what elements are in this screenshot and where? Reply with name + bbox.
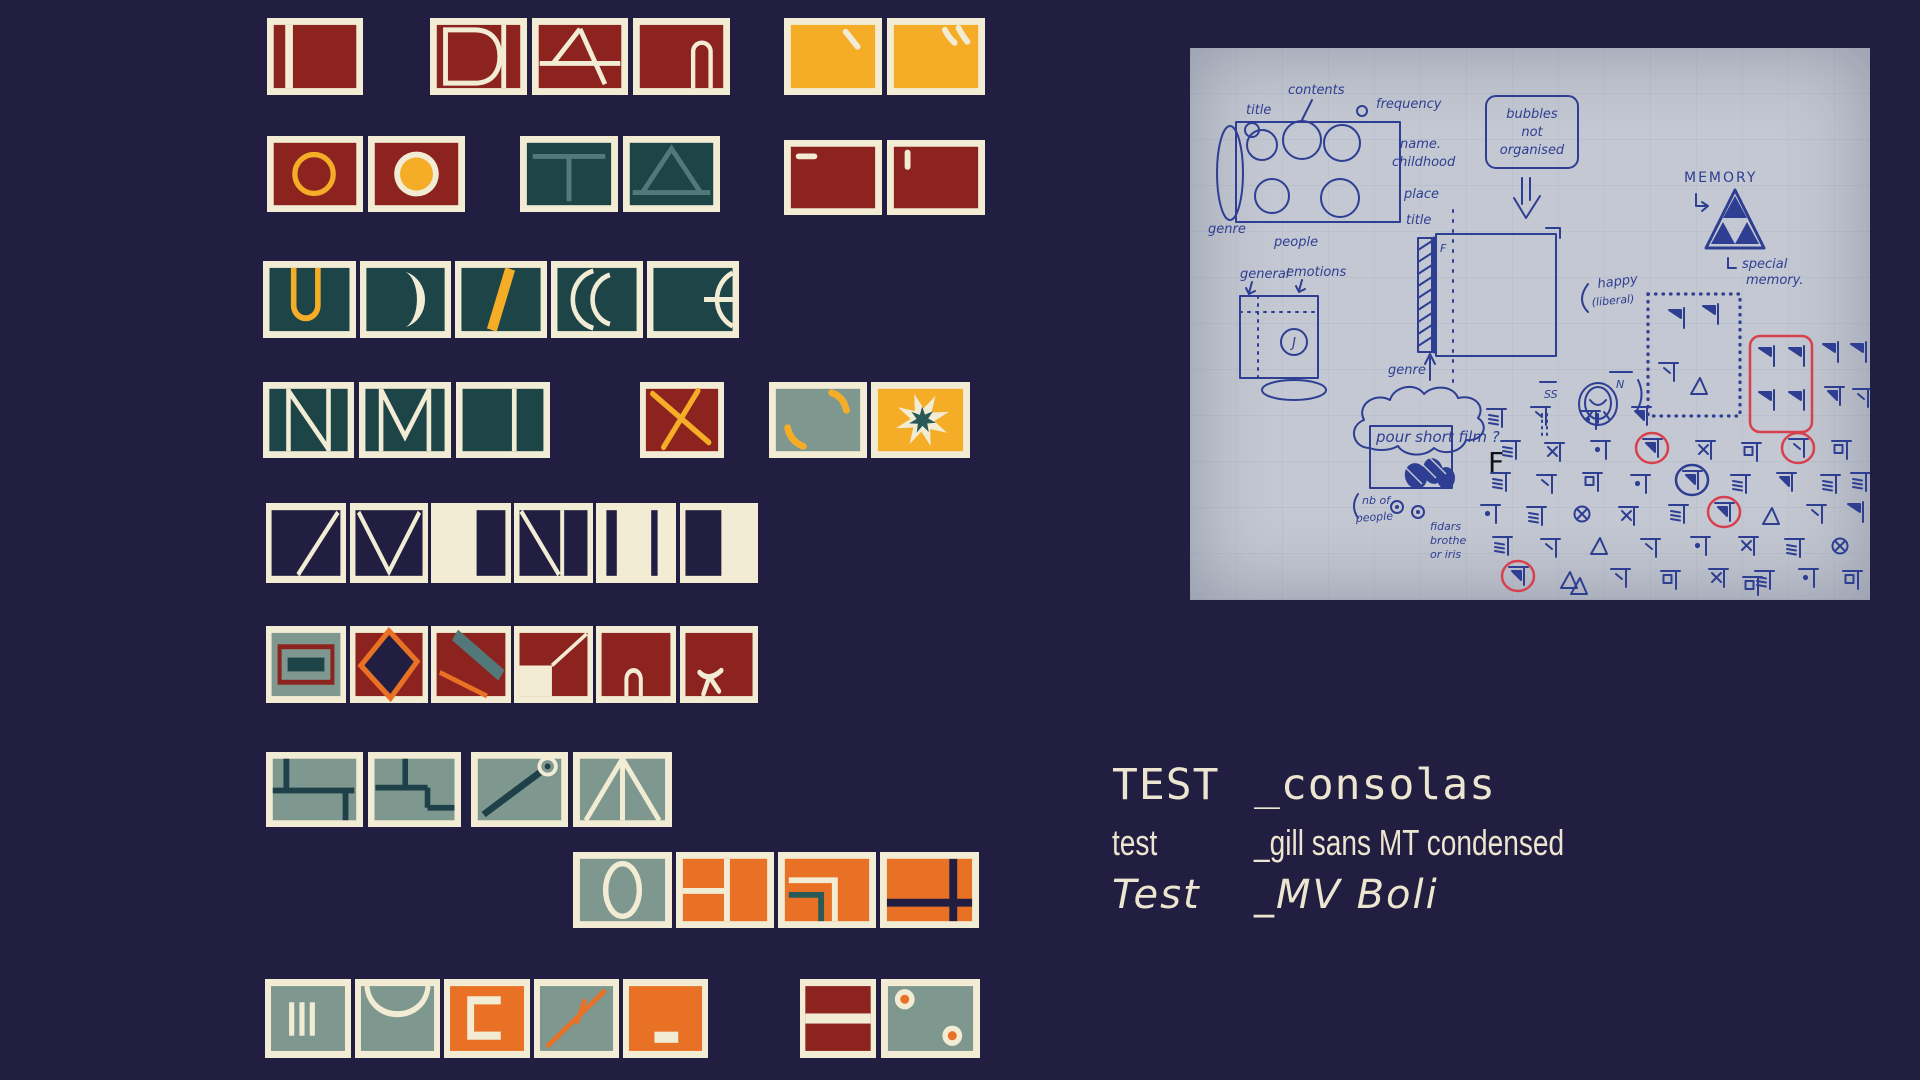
tile-ring-amber bbox=[267, 136, 363, 212]
font-test-row: test _gill sans MT condensed bbox=[1112, 822, 1652, 864]
tile-cross-navy bbox=[880, 852, 979, 928]
cuneiform-glyph bbox=[1708, 497, 1740, 527]
cuneiform-glyph bbox=[1619, 507, 1638, 525]
cuneiform-glyph bbox=[1789, 390, 1804, 410]
tile-diag bbox=[266, 503, 346, 583]
tile-crescent-1 bbox=[360, 261, 451, 338]
tile-flag bbox=[514, 626, 593, 703]
tile-small-arch bbox=[596, 626, 676, 703]
cuneiform-glyph bbox=[1853, 389, 1870, 407]
label-contents: contents bbox=[1288, 83, 1345, 98]
cuneiform-glyph bbox=[1661, 571, 1680, 589]
cuneiform-glyph bbox=[1759, 346, 1774, 366]
tile-diamond bbox=[350, 626, 428, 703]
cuneiform-glyph bbox=[1851, 473, 1870, 491]
label-name: name. bbox=[1400, 137, 1441, 152]
label-emotions: emotions bbox=[1286, 265, 1347, 280]
tile-triangle bbox=[623, 136, 720, 212]
tile-starburst bbox=[871, 382, 970, 458]
cuneiform-glyph bbox=[1575, 507, 1590, 522]
tile-cream-left-navy bbox=[680, 503, 758, 583]
cuneiform-glyph bbox=[1541, 539, 1560, 557]
cuneiform-glyph bbox=[1493, 537, 1512, 555]
cuneiform-glyph bbox=[1759, 390, 1774, 410]
red-selection-box bbox=[1750, 336, 1812, 432]
cuneiform-glyph bbox=[1527, 507, 1546, 525]
bubbles-line-3: organised bbox=[1500, 143, 1565, 158]
tile-pin-diag bbox=[471, 752, 568, 827]
label-general: general bbox=[1240, 267, 1290, 282]
tile-tick-2 bbox=[887, 18, 985, 95]
cuneiform-glyph bbox=[1789, 346, 1804, 366]
label-liberal: (liberal) bbox=[1591, 292, 1635, 309]
tile-arch-right bbox=[633, 18, 730, 95]
font-sample-consolas: TEST bbox=[1112, 760, 1254, 810]
cuneiform-glyph bbox=[1696, 441, 1715, 459]
cuneiform-glyph bbox=[1691, 537, 1710, 555]
tile-diag-split bbox=[514, 503, 593, 583]
tile-letter-D bbox=[430, 18, 527, 95]
sketch-drawing: title contents frequency name. childhood… bbox=[1190, 48, 1870, 600]
label-memory: MEMORY bbox=[1684, 170, 1757, 186]
tile-slash-amber bbox=[455, 261, 547, 338]
tile-grid-h bbox=[676, 852, 774, 928]
cuneiform-glyph bbox=[1545, 443, 1564, 461]
hook-arrow-icon bbox=[1696, 194, 1708, 211]
cuneiform-glyph bbox=[1691, 378, 1707, 394]
label-place: place bbox=[1403, 187, 1439, 202]
cuneiform-glyph bbox=[1823, 342, 1838, 362]
tile-slash-cross bbox=[534, 979, 619, 1058]
font-test-list: TEST _consolas test _gill sans MT conden… bbox=[1112, 760, 1652, 918]
label-frequency: frequency bbox=[1376, 97, 1442, 112]
cuneiform-glyph bbox=[1611, 569, 1630, 587]
tile-oval bbox=[573, 852, 672, 928]
cuneiform-glyph bbox=[1843, 571, 1862, 589]
tile-u-amber bbox=[263, 261, 356, 338]
moodboard-canvas: title contents frequency name. childhood… bbox=[0, 0, 1920, 1080]
label-people: people bbox=[1273, 235, 1318, 250]
cuneiform-glyph bbox=[1669, 505, 1688, 523]
label-fidars: fidars bbox=[1430, 520, 1461, 533]
cuneiform-glyph bbox=[1785, 539, 1804, 557]
cuneiform-glyph bbox=[1731, 475, 1750, 493]
sketch-photo: title contents frequency name. childhood… bbox=[1190, 48, 1870, 600]
label-or-iris: or iris bbox=[1430, 548, 1461, 561]
film-frame-note: nb of people fidars brothe or iris bbox=[1354, 426, 1467, 561]
cuneiform-glyph bbox=[1591, 538, 1607, 554]
tile-dash-tl bbox=[784, 140, 882, 215]
font-sample-mvboli: Test bbox=[1112, 872, 1254, 918]
font-test-row: Test _MV Boli bbox=[1112, 872, 1652, 918]
tile-cream-two-bars bbox=[596, 503, 676, 583]
cuneiform-glyph bbox=[1703, 304, 1718, 324]
tile-bird bbox=[680, 626, 758, 703]
cuneiform-glyph bbox=[1832, 441, 1851, 459]
cuneiform-glyph bbox=[1537, 475, 1556, 493]
label-f-marker: F bbox=[1488, 446, 1504, 479]
memory-note: MEMORY special memory. bbox=[1684, 170, 1803, 288]
bubbles-line-1: bubbles bbox=[1506, 107, 1558, 122]
label-genre-mid: genre bbox=[1388, 363, 1426, 378]
tile-path-2 bbox=[368, 752, 461, 827]
cuneiform-glyph bbox=[1782, 433, 1814, 463]
tile-u-curve bbox=[355, 979, 440, 1058]
font-test-row: TEST _consolas bbox=[1112, 760, 1652, 810]
cuneiform-glyph bbox=[1799, 569, 1818, 587]
label-genre-left: genre bbox=[1208, 222, 1246, 237]
label-j: J bbox=[1289, 336, 1296, 351]
hook-icon bbox=[1728, 258, 1736, 268]
tile-stripe-mid bbox=[800, 979, 876, 1058]
cuneiform-glyph bbox=[1636, 433, 1668, 463]
cuneiform-glyph bbox=[1502, 561, 1534, 591]
tile-dot-amber bbox=[368, 136, 465, 212]
up-arrow-icon bbox=[1425, 354, 1435, 380]
down-arrow-icon bbox=[1522, 178, 1530, 204]
label-ss: SS bbox=[1544, 388, 1558, 401]
cuneiform-glyph bbox=[1848, 502, 1863, 522]
cuneiform-glyph bbox=[1777, 473, 1796, 491]
tile-half-e bbox=[647, 261, 739, 338]
label-brothe: brothe bbox=[1430, 534, 1467, 547]
tile-x-amber bbox=[640, 382, 724, 458]
cuneiform-glyph bbox=[1641, 539, 1660, 557]
bubbles-note: bubbles not organised bbox=[1486, 96, 1578, 218]
cuneiform-glyph bbox=[1676, 465, 1708, 495]
tile-curves-amber bbox=[769, 382, 867, 458]
label-n: N bbox=[1616, 378, 1624, 391]
tile-corner-nest bbox=[778, 852, 876, 928]
tile-path-1 bbox=[266, 752, 363, 827]
tile-tee bbox=[520, 136, 618, 212]
emotions-box: general emotions J bbox=[1240, 265, 1347, 400]
ss-n-glyphs: SS N bbox=[1540, 372, 1642, 438]
cuneiform-glyph bbox=[1825, 387, 1844, 405]
font-name-gill: _gill sans MT condensed bbox=[1254, 822, 1564, 864]
cuneiform-glyph bbox=[1487, 409, 1506, 427]
cuneiform-glyph bbox=[1851, 342, 1866, 362]
tile-box-minus bbox=[266, 626, 346, 703]
tile-tick-1 bbox=[784, 18, 882, 95]
tile-two-dots bbox=[881, 979, 980, 1058]
label-special: special bbox=[1742, 257, 1788, 272]
special-memory-box bbox=[1648, 294, 1740, 416]
label-childhood: childhood bbox=[1392, 155, 1456, 170]
cuneiform-glyph bbox=[1807, 505, 1826, 523]
tile-cream-right-navy bbox=[431, 503, 511, 583]
film-cloud: pour short film ? bbox=[1354, 387, 1500, 455]
happy-note: happy (liberal) bbox=[1582, 272, 1639, 312]
label-title-mid: title bbox=[1406, 213, 1431, 228]
cuneiform-glyph bbox=[1709, 569, 1728, 587]
label-f-spine: F bbox=[1440, 242, 1447, 255]
label-special-memory: memory. bbox=[1746, 273, 1803, 288]
cuneiform-glyph bbox=[1481, 505, 1500, 523]
font-name-consolas: _consolas bbox=[1254, 760, 1496, 810]
cuneiform-glyph bbox=[1631, 475, 1650, 493]
cuneiform-glyph bbox=[1591, 441, 1610, 459]
tile-crescent-2 bbox=[551, 261, 643, 338]
tile-fan bbox=[573, 752, 672, 827]
tile-three-bars bbox=[265, 979, 351, 1058]
tile-double-diag bbox=[431, 626, 511, 703]
cuneiform-glyph bbox=[1659, 363, 1678, 381]
tile-split-v bbox=[456, 382, 550, 458]
storyboard-book: title F genre bbox=[1388, 210, 1560, 382]
tile-letter-N bbox=[263, 382, 354, 458]
cuneiform-glyph bbox=[1669, 308, 1684, 328]
bubbles-line-2: not bbox=[1521, 125, 1543, 140]
label-happy: happy bbox=[1597, 272, 1639, 292]
font-sample-gill: test bbox=[1112, 822, 1157, 864]
cuneiform-glyph bbox=[1833, 539, 1848, 554]
label-nb-of: nb of bbox=[1362, 494, 1392, 507]
tile-dash-bottom bbox=[623, 979, 708, 1058]
cuneiform-glyph bbox=[1583, 473, 1602, 491]
label-people-2: people bbox=[1354, 509, 1393, 525]
tile-bar-left bbox=[267, 18, 363, 95]
cuneiform-glyph bbox=[1821, 475, 1840, 493]
tile-letter-M bbox=[359, 382, 451, 458]
tile-tick-tl bbox=[887, 140, 985, 215]
tile-vee bbox=[350, 503, 428, 583]
font-name-mvboli: _MV Boli bbox=[1254, 872, 1439, 918]
tile-letter-A bbox=[532, 18, 628, 95]
cuneiform-glyph bbox=[1739, 537, 1758, 555]
cuneiform-glyph bbox=[1763, 508, 1779, 524]
cuneiform-glyph bbox=[1742, 443, 1761, 461]
label-cloud: pour short film ? bbox=[1375, 428, 1500, 446]
label-title-top: title bbox=[1246, 103, 1271, 118]
tile-bracket-c bbox=[444, 979, 530, 1058]
